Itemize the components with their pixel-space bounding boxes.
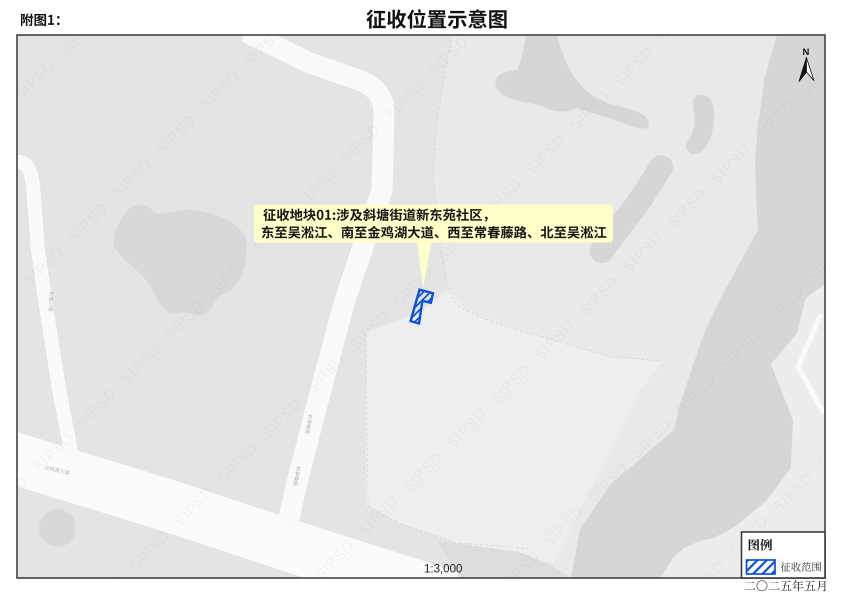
svg-text:N: N (803, 47, 810, 58)
svg-text:SIPSD: SIPSD (0, 101, 14, 148)
svg-text:1:3,000: 1:3,000 (424, 564, 462, 576)
